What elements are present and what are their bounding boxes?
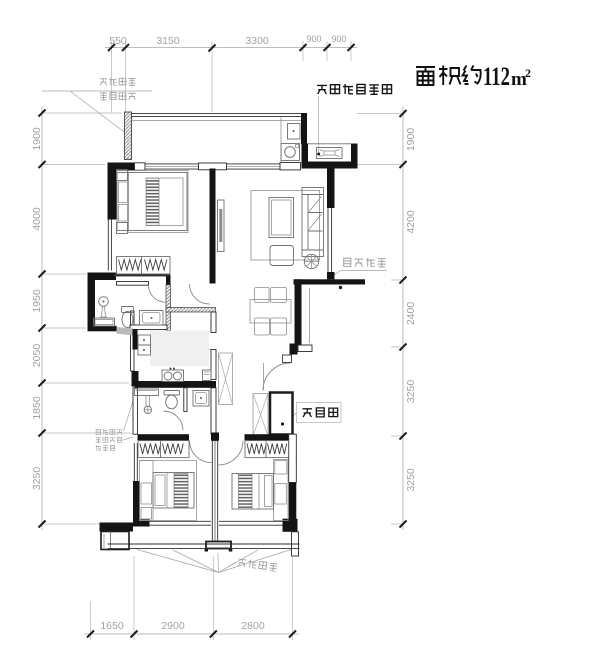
svg-text:550: 550 (109, 35, 127, 47)
svg-text:2800: 2800 (241, 620, 265, 632)
svg-text:2050: 2050 (31, 344, 43, 368)
svg-text:3250: 3250 (31, 467, 43, 491)
svg-text:3250: 3250 (405, 468, 417, 492)
svg-text:1900: 1900 (31, 127, 43, 151)
svg-text:2400: 2400 (405, 302, 417, 326)
svg-text:4200: 4200 (405, 210, 417, 234)
svg-text:900: 900 (306, 34, 321, 44)
svg-text:112: 112 (483, 62, 510, 91)
svg-text:3250: 3250 (405, 380, 417, 404)
svg-text:1900: 1900 (405, 128, 417, 152)
svg-text:1650: 1650 (100, 620, 124, 632)
svg-text:4000: 4000 (31, 207, 43, 231)
svg-text:3150: 3150 (156, 35, 180, 47)
svg-text:1950: 1950 (31, 289, 43, 313)
svg-text:3300: 3300 (245, 35, 269, 47)
svg-text:2900: 2900 (161, 620, 185, 632)
svg-text:1850: 1850 (31, 396, 43, 420)
svg-text:2: 2 (525, 66, 531, 80)
svg-text:900: 900 (331, 34, 346, 44)
